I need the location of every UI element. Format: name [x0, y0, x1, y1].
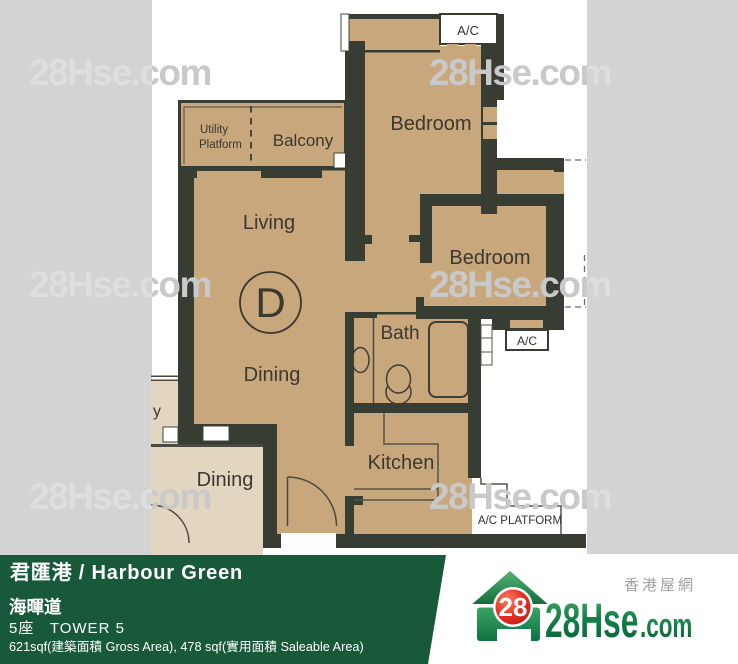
svg-text:28Hse: 28Hse	[545, 593, 638, 647]
svg-text:Utility: Utility	[200, 124, 228, 136]
svg-text:.com: .com	[640, 607, 692, 645]
svg-text:Platform: Platform	[199, 139, 242, 151]
svg-text:Living: Living	[243, 212, 295, 234]
svg-text:y: y	[153, 403, 161, 420]
svg-text:D: D	[255, 279, 285, 326]
svg-text:A/C: A/C	[457, 23, 479, 38]
svg-text:Balcony: Balcony	[273, 131, 334, 150]
svg-text:Dining: Dining	[244, 364, 301, 386]
svg-text:香港屋網: 香港屋網	[624, 577, 696, 594]
svg-text:28: 28	[499, 592, 528, 622]
svg-text:Kitchen: Kitchen	[368, 452, 435, 474]
svg-text:Bath: Bath	[380, 323, 419, 344]
svg-text:Bedroom: Bedroom	[390, 113, 471, 135]
svg-text:A/C: A/C	[517, 334, 537, 348]
